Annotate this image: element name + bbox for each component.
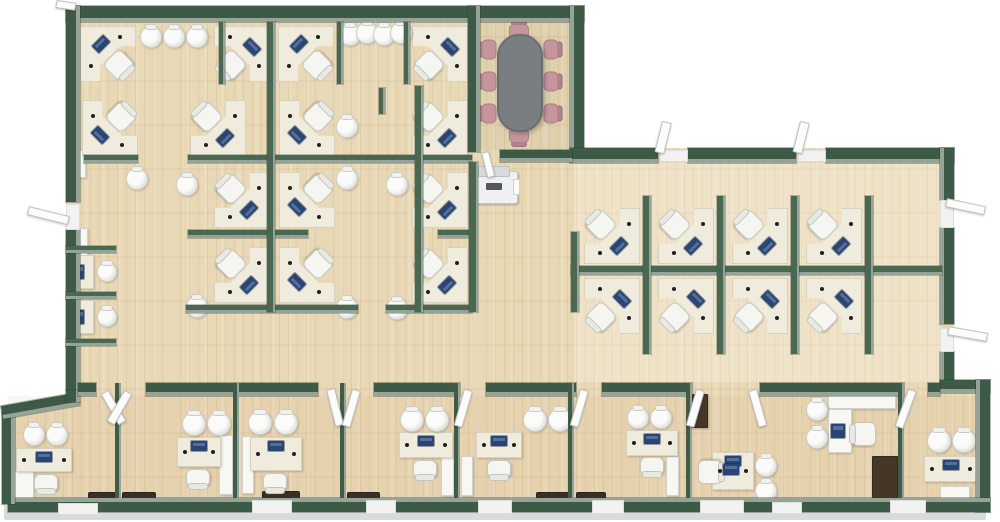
office-divider-wall[interactable] [568, 383, 574, 498]
chair-back [731, 316, 750, 335]
cabinet-dark[interactable] [872, 456, 898, 502]
conference-chair[interactable] [544, 104, 563, 124]
cubicle-partition[interactable] [66, 246, 116, 253]
workstation[interactable] [412, 26, 468, 82]
wall-segment[interactable] [500, 150, 572, 162]
door-threshold [700, 500, 744, 514]
chair-back [553, 406, 567, 412]
desk-phone [405, 443, 409, 447]
desk-item [627, 222, 631, 226]
floor-plan-objects [0, 0, 1000, 522]
workstation[interactable] [732, 208, 788, 264]
chair-seat [482, 72, 497, 92]
wall-segment[interactable] [826, 148, 954, 163]
desk-item [233, 114, 237, 118]
desk-item [820, 287, 824, 291]
cubicle-partition[interactable] [66, 292, 116, 299]
desk-item [317, 290, 321, 294]
wall-segment[interactable] [146, 383, 318, 396]
workstation[interactable] [658, 278, 714, 334]
chair-seat [544, 104, 559, 124]
cubicle-partition[interactable] [571, 232, 579, 312]
chair-back [341, 295, 354, 301]
chair-back [430, 406, 444, 412]
door-threshold [890, 500, 926, 514]
chair-back [118, 64, 137, 83]
guest-chair[interactable] [23, 424, 45, 446]
desk-item [455, 261, 459, 265]
chair-back [657, 207, 676, 226]
workstation[interactable] [658, 208, 714, 264]
chair-back [344, 22, 357, 28]
desk-phone [849, 316, 853, 320]
cubicle-partition[interactable] [337, 22, 343, 84]
monitor [943, 460, 959, 470]
guest-chair[interactable] [207, 412, 231, 436]
monitor [491, 436, 507, 446]
cubicle-partition[interactable] [571, 266, 942, 275]
desk-item [257, 261, 261, 265]
wall-segment[interactable] [468, 6, 480, 152]
chair-back [191, 294, 204, 300]
chair-seat [544, 72, 559, 92]
conference-chair[interactable] [544, 72, 563, 92]
door-leaf[interactable] [55, 0, 76, 11]
workstation[interactable] [214, 247, 270, 303]
workstation[interactable] [584, 278, 640, 334]
chair-back [849, 424, 856, 444]
guest-chair[interactable] [650, 407, 672, 429]
desk-item [317, 143, 321, 147]
desk-item [317, 215, 321, 219]
desk-item [211, 450, 215, 454]
desk-phone [118, 35, 122, 39]
wall-segment[interactable] [2, 412, 15, 504]
desk-phone [718, 469, 722, 473]
chair-back [213, 246, 232, 265]
door-threshold [252, 500, 292, 514]
workstation[interactable] [279, 247, 335, 303]
chair-back [642, 471, 662, 478]
guest-chair[interactable] [755, 455, 777, 477]
chair-back [932, 427, 946, 433]
guest-chair[interactable] [806, 399, 828, 421]
chair-back [805, 316, 824, 335]
chair-back [168, 24, 181, 30]
workstation[interactable] [82, 100, 138, 156]
desk-item [292, 452, 296, 456]
workstation[interactable] [278, 26, 334, 82]
conference-chair[interactable] [478, 40, 497, 60]
desk-item [228, 35, 232, 39]
desk-phone [183, 450, 187, 454]
cubicle-partition[interactable] [717, 196, 725, 354]
wall-segment[interactable] [66, 230, 80, 390]
chair-back [187, 410, 201, 416]
desk-phone [204, 143, 208, 147]
monitor [644, 434, 660, 444]
desk-item [701, 222, 705, 226]
cubicle-partition[interactable] [438, 230, 472, 238]
desk-phone [701, 316, 705, 320]
desk-phone [426, 143, 430, 147]
desk-phone [775, 316, 779, 320]
conference-chair[interactable] [478, 104, 497, 124]
desk-phone [598, 251, 602, 255]
desk-item [668, 441, 672, 445]
wall-segment[interactable] [66, 6, 584, 22]
copier-tray [513, 179, 520, 195]
chair-back [279, 409, 293, 415]
guest-chair[interactable] [425, 408, 449, 432]
desk-item [598, 287, 602, 291]
desk-item [443, 443, 447, 447]
chair-back [316, 64, 335, 83]
guest-chair[interactable] [248, 411, 272, 435]
guest-chair[interactable] [627, 407, 649, 429]
cubicle-partition[interactable] [386, 305, 472, 313]
desk-phone [91, 114, 95, 118]
guest-chair[interactable] [182, 412, 206, 436]
office-chair[interactable] [852, 422, 876, 446]
conference-chair[interactable] [478, 72, 497, 92]
chair-back [731, 207, 750, 226]
desk-item [775, 222, 779, 226]
wall-segment[interactable] [66, 6, 80, 202]
monitor [831, 424, 845, 438]
chair-back [391, 296, 404, 302]
desk-item [62, 458, 66, 462]
guest-chair[interactable] [386, 174, 408, 196]
chair-back [189, 99, 208, 118]
desk-phone [257, 64, 261, 68]
chair-back [415, 474, 435, 481]
desk-phone [482, 443, 486, 447]
door-threshold [772, 502, 802, 514]
floor-plan-canvas [0, 0, 1000, 522]
chair-seat [482, 40, 497, 60]
desk-phone [627, 316, 631, 320]
guest-chair[interactable] [336, 168, 358, 190]
chair-back [655, 405, 668, 411]
guest-chair[interactable] [927, 429, 951, 453]
workstation[interactable] [806, 278, 862, 334]
chair-back [811, 425, 824, 431]
desk-phone [820, 251, 824, 255]
chair-back [191, 24, 204, 30]
chair-back [760, 453, 773, 459]
desk-phone [256, 452, 260, 456]
door-threshold [366, 500, 396, 514]
chair-back [632, 405, 645, 411]
workstation[interactable] [806, 208, 862, 264]
chair-back [213, 171, 232, 190]
desk-phone [22, 458, 26, 462]
office-chair[interactable] [413, 460, 437, 478]
conference-chair[interactable] [544, 40, 563, 60]
monitor [191, 441, 207, 451]
guest-chair[interactable] [46, 424, 68, 446]
workstation[interactable] [80, 26, 136, 82]
wall-segment[interactable] [486, 383, 576, 396]
door-threshold [592, 500, 624, 514]
chair-back [317, 171, 336, 190]
guest-chair[interactable] [186, 26, 208, 48]
cabinet[interactable] [666, 456, 679, 496]
cabinet[interactable] [461, 456, 473, 496]
door-leaf[interactable] [27, 206, 70, 225]
cubicle-partition[interactable] [66, 339, 116, 346]
cubicle-partition[interactable] [219, 22, 225, 84]
cubicle-partition[interactable] [188, 230, 308, 238]
guest-chair[interactable] [806, 427, 828, 449]
office-chair[interactable] [263, 473, 287, 491]
wall-segment[interactable] [570, 148, 658, 163]
conference-table[interactable] [497, 34, 543, 132]
wall-segment[interactable] [928, 383, 940, 396]
chair-back [378, 22, 391, 28]
monitor [36, 452, 52, 462]
workstation[interactable] [214, 172, 270, 228]
chair-back [253, 409, 267, 415]
office-chair[interactable] [487, 460, 511, 478]
wall-segment[interactable] [940, 228, 954, 324]
cubicle-partition[interactable] [643, 196, 651, 354]
wall-segment[interactable] [976, 380, 990, 512]
workstation[interactable] [584, 208, 640, 264]
chair-seat [544, 40, 559, 60]
desk-phone [288, 114, 292, 118]
monitor [723, 464, 739, 475]
chair-back [317, 99, 336, 118]
desk-phone [930, 467, 934, 471]
workstation[interactable] [732, 278, 788, 334]
cubicle-partition[interactable] [267, 22, 275, 312]
guest-chair[interactable] [126, 168, 148, 190]
chair-back [405, 406, 419, 412]
chair-back [760, 478, 773, 484]
chair-back [528, 406, 542, 412]
desk-item [744, 469, 748, 473]
cubicle-partition[interactable] [865, 196, 873, 354]
desk-item [849, 222, 853, 226]
desk-phone [228, 290, 232, 294]
guest-chair[interactable] [952, 429, 976, 453]
chair-back [120, 99, 139, 118]
chair-back [489, 474, 509, 481]
chair-back [131, 166, 144, 172]
desk-phone [288, 261, 292, 265]
chair-back [341, 114, 354, 120]
monitor [418, 436, 434, 446]
booth-chair[interactable] [97, 262, 117, 282]
wall-segment[interactable] [602, 383, 692, 396]
desk-item [455, 186, 459, 190]
door-threshold [58, 503, 98, 515]
chair-back [36, 488, 56, 495]
chair-back [101, 260, 113, 266]
chair-seat [482, 104, 497, 124]
booth-chair[interactable] [97, 307, 117, 327]
chair-back [805, 207, 824, 226]
cubicle-partition[interactable] [404, 22, 410, 84]
chair-back [657, 316, 676, 335]
desk-item [455, 114, 459, 118]
cubicle-partition[interactable] [469, 162, 478, 312]
desk-phone [746, 251, 750, 255]
chair-back [101, 305, 113, 311]
workstation[interactable] [190, 100, 246, 156]
cubicle-partition[interactable] [84, 155, 138, 163]
cubicle-partition[interactable] [188, 155, 472, 163]
desk-item [672, 287, 676, 291]
wall-segment[interactable] [78, 383, 96, 396]
guest-chair[interactable] [523, 408, 547, 432]
desk-item [426, 35, 430, 39]
chair-back [583, 316, 602, 335]
desk-phone [426, 290, 430, 294]
chair-back [188, 483, 208, 490]
desk-item [257, 186, 261, 190]
desk-phone [316, 35, 320, 39]
desk-phone [632, 441, 636, 445]
workstation[interactable] [279, 100, 335, 156]
office-chair[interactable] [34, 474, 58, 492]
guest-chair[interactable] [400, 408, 424, 432]
wall-segment[interactable] [374, 383, 460, 396]
office-divider-wall[interactable] [233, 383, 239, 498]
desk-phone [455, 64, 459, 68]
door-threshold [478, 500, 512, 514]
guest-chair[interactable] [176, 174, 198, 196]
wall-segment[interactable] [760, 383, 904, 396]
wall-segment[interactable] [688, 148, 796, 163]
cabinet[interactable] [219, 435, 233, 495]
desk-item [968, 467, 972, 471]
chair-back [957, 427, 971, 433]
office-divider-wall[interactable] [686, 383, 692, 498]
cubicle-partition[interactable] [379, 88, 385, 114]
desk-item [746, 287, 750, 291]
wall-segment[interactable] [940, 148, 954, 200]
desk-phone [672, 251, 676, 255]
cabinet[interactable] [441, 456, 454, 496]
chair-back [181, 172, 194, 178]
desk-item [120, 143, 124, 147]
guest-chair[interactable] [140, 26, 162, 48]
monitor [268, 441, 284, 451]
desk-item [287, 64, 291, 68]
chair-back [411, 64, 430, 83]
guest-chair[interactable] [336, 116, 358, 138]
cubicle-partition[interactable] [415, 86, 423, 312]
office-chair[interactable] [186, 469, 210, 487]
desk-phone [228, 215, 232, 219]
cubicle-partition[interactable] [791, 196, 799, 354]
office-divider-wall[interactable] [340, 383, 346, 498]
chair-back [28, 422, 41, 428]
office-chair[interactable] [640, 457, 664, 475]
chair-back [341, 166, 354, 172]
desk-phone [426, 215, 430, 219]
wall-segment[interactable] [570, 6, 584, 162]
office-divider-wall[interactable] [454, 383, 460, 498]
chair-back [811, 397, 824, 403]
chair-back [265, 487, 285, 494]
chair-back [51, 422, 64, 428]
chair-back [391, 172, 404, 178]
chair-back [317, 246, 336, 265]
desk-phone [288, 186, 292, 190]
desk-item [89, 64, 93, 68]
copier-slot [486, 183, 502, 190]
chair-back [212, 410, 226, 416]
desk-item [512, 443, 516, 447]
chair-back [583, 207, 602, 226]
guest-chair[interactable] [163, 26, 185, 48]
workstation[interactable] [279, 172, 335, 228]
chair-back [145, 24, 158, 30]
guest-chair[interactable] [274, 411, 298, 435]
